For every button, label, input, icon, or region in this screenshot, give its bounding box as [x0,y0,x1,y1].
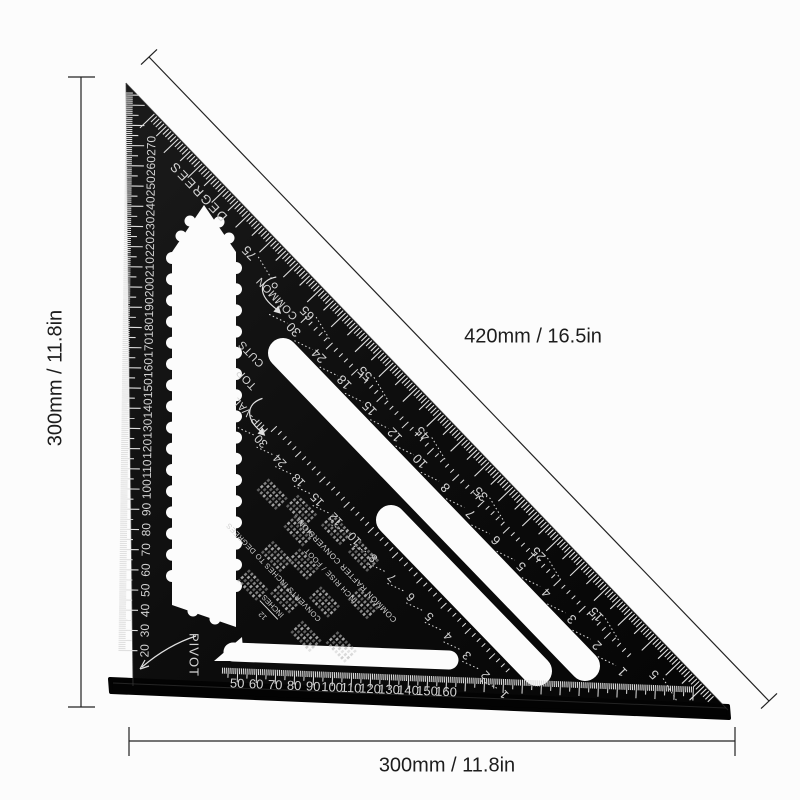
svg-text:60: 60 [139,563,153,577]
svg-text:70: 70 [139,543,153,557]
svg-text:180: 180 [142,317,156,338]
svg-text:240: 240 [143,196,157,217]
left-dimension-label: 300mm / 11.8in [45,310,68,446]
svg-text:150: 150 [141,378,155,399]
svg-text:90: 90 [306,678,321,694]
svg-text:190: 190 [142,297,156,318]
svg-text:50: 50 [230,675,245,691]
svg-text:30: 30 [138,624,152,638]
svg-text:160: 160 [141,358,155,379]
svg-text:220: 220 [143,236,157,257]
svg-text:250: 250 [144,176,158,197]
bottom-dimension-label: 300mm / 11.8in [379,755,515,778]
svg-text:130: 130 [140,418,154,439]
svg-text:100: 100 [140,479,154,500]
svg-text:160: 160 [435,684,457,700]
svg-text:80: 80 [287,678,302,694]
hypotenuse-dimension-label: 420mm / 16.5in [464,326,602,349]
svg-text:210: 210 [143,257,157,278]
svg-text:110: 110 [140,459,154,479]
svg-text:230: 230 [143,216,157,237]
svg-text:80: 80 [139,523,153,537]
product-photo: 2030405060708090100110120130140150160170… [0,0,800,800]
svg-text:260: 260 [144,156,158,177]
svg-text:20: 20 [138,644,152,658]
svg-text:140: 140 [141,398,155,419]
svg-text:60: 60 [249,676,264,692]
svg-text:120: 120 [140,438,154,459]
svg-text:200: 200 [142,277,156,298]
svg-text:PIVOT: PIVOT [187,633,202,677]
svg-text:70: 70 [268,677,283,693]
svg-text:270: 270 [144,135,158,156]
svg-text:90: 90 [139,502,153,516]
svg-text:40: 40 [138,603,152,617]
svg-text:50: 50 [138,583,152,597]
svg-text:170: 170 [142,337,156,358]
speed-square-svg: 2030405060708090100110120130140150160170… [0,0,800,800]
